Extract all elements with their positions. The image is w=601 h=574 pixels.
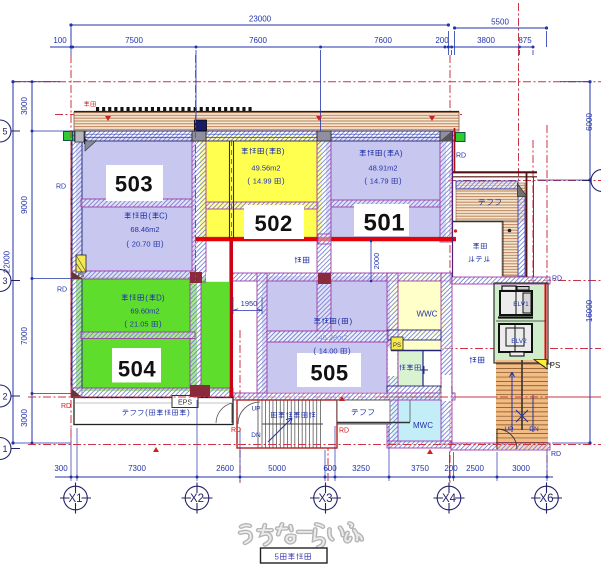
svg-text:2600: 2600 (216, 464, 234, 473)
svg-text:2000: 2000 (372, 253, 381, 270)
svg-text:9000: 9000 (20, 196, 29, 214)
svg-text:X2: X2 (190, 493, 204, 505)
svg-text:PS: PS (550, 361, 561, 370)
svg-text:UP: UP (504, 426, 513, 433)
svg-text:3000: 3000 (20, 97, 29, 115)
svg-text:): ) (349, 317, 352, 326)
svg-text:ELV2: ELV2 (511, 338, 527, 345)
svg-text:49.56m2: 49.56m2 (251, 164, 280, 173)
svg-text:504: 504 (118, 356, 156, 381)
svg-text:(: ( (145, 293, 148, 302)
svg-text:48.91m2: 48.91m2 (368, 164, 397, 173)
svg-text:PS: PS (78, 273, 85, 279)
svg-text:(: ( (383, 149, 386, 158)
svg-text:3800: 3800 (477, 36, 495, 45)
svg-text:3250: 3250 (352, 464, 370, 473)
svg-text:1950: 1950 (241, 299, 258, 308)
svg-text:2: 2 (2, 392, 7, 402)
svg-text:7500: 7500 (125, 36, 143, 45)
svg-text:(: ( (145, 408, 148, 417)
svg-text:20.70: 20.70 (132, 240, 151, 249)
svg-text:(: ( (364, 177, 367, 186)
svg-text:DN: DN (251, 432, 261, 439)
svg-text:(: ( (265, 147, 268, 156)
svg-text:200: 200 (444, 464, 458, 473)
svg-text:DN: DN (529, 426, 539, 433)
svg-text:5500: 5500 (491, 18, 509, 27)
svg-text:X4: X4 (442, 493, 457, 505)
svg-text:502: 502 (254, 211, 292, 236)
svg-text:(: ( (124, 320, 127, 329)
svg-text:): ) (187, 408, 190, 417)
svg-text:RD: RD (552, 276, 562, 283)
svg-text:): ) (161, 240, 164, 249)
svg-text:14.99: 14.99 (253, 177, 272, 186)
svg-text:RD: RD (456, 153, 466, 160)
svg-text:MWC: MWC (413, 421, 433, 430)
svg-text:UP: UP (251, 406, 260, 413)
svg-text:23000: 23000 (249, 15, 272, 24)
svg-text:RD: RD (231, 427, 241, 434)
svg-text:): ) (165, 211, 168, 220)
svg-text:3750: 3750 (411, 464, 429, 473)
svg-text:68.46m2: 68.46m2 (130, 225, 159, 234)
svg-text:): ) (159, 320, 162, 329)
svg-text:2500: 2500 (466, 464, 484, 473)
svg-text:RD: RD (56, 184, 66, 191)
svg-text:): ) (399, 177, 402, 186)
svg-text:200: 200 (435, 36, 449, 45)
svg-text:7600: 7600 (374, 36, 392, 45)
svg-text:RD: RD (551, 451, 561, 458)
svg-text:RD: RD (61, 403, 71, 410)
svg-text:): ) (162, 293, 165, 302)
svg-text:(: ( (148, 211, 151, 220)
svg-text:X1: X1 (68, 493, 82, 505)
svg-text:): ) (282, 147, 285, 156)
svg-text:): ) (400, 149, 403, 158)
svg-text:7600: 7600 (249, 36, 267, 45)
svg-text:7300: 7300 (128, 464, 146, 473)
svg-text:PS: PS (393, 343, 401, 349)
svg-text:5: 5 (2, 127, 7, 137)
svg-text:14.79: 14.79 (370, 177, 389, 186)
svg-text:69.60m2: 69.60m2 (130, 307, 159, 316)
svg-text:EPS: EPS (178, 400, 192, 407)
svg-text:3000: 3000 (512, 464, 530, 473)
svg-text:X6: X6 (539, 493, 553, 505)
svg-text:7000: 7000 (20, 327, 29, 345)
svg-text:X3: X3 (318, 493, 332, 505)
svg-text:503: 503 (115, 171, 153, 196)
svg-text:(: ( (338, 317, 341, 326)
svg-text:RD: RD (57, 287, 67, 294)
svg-text:B: B (276, 147, 281, 156)
svg-text:ELV1: ELV1 (513, 301, 529, 308)
svg-text:(: ( (126, 240, 129, 249)
svg-text:100: 100 (53, 36, 67, 45)
svg-text:501: 501 (364, 209, 406, 236)
svg-text:16000: 16000 (585, 299, 594, 322)
svg-text:3000: 3000 (20, 409, 29, 427)
svg-text:5: 5 (274, 552, 279, 561)
svg-text:1: 1 (2, 444, 7, 454)
svg-text:(: ( (247, 177, 250, 186)
svg-text:14.00: 14.00 (319, 347, 338, 356)
svg-text:21.05: 21.05 (130, 320, 149, 329)
svg-text:RD: RD (339, 428, 349, 435)
svg-text:3: 3 (2, 276, 7, 286)
svg-text:5000: 5000 (268, 464, 286, 473)
svg-text:300: 300 (54, 464, 68, 473)
svg-text:WWC: WWC (417, 310, 438, 319)
svg-text:6000: 6000 (585, 113, 594, 131)
svg-text:(: ( (313, 347, 316, 356)
svg-text:505: 505 (310, 361, 348, 386)
svg-text:): ) (348, 347, 351, 356)
svg-text:875: 875 (518, 36, 532, 45)
svg-text:): ) (282, 177, 285, 186)
